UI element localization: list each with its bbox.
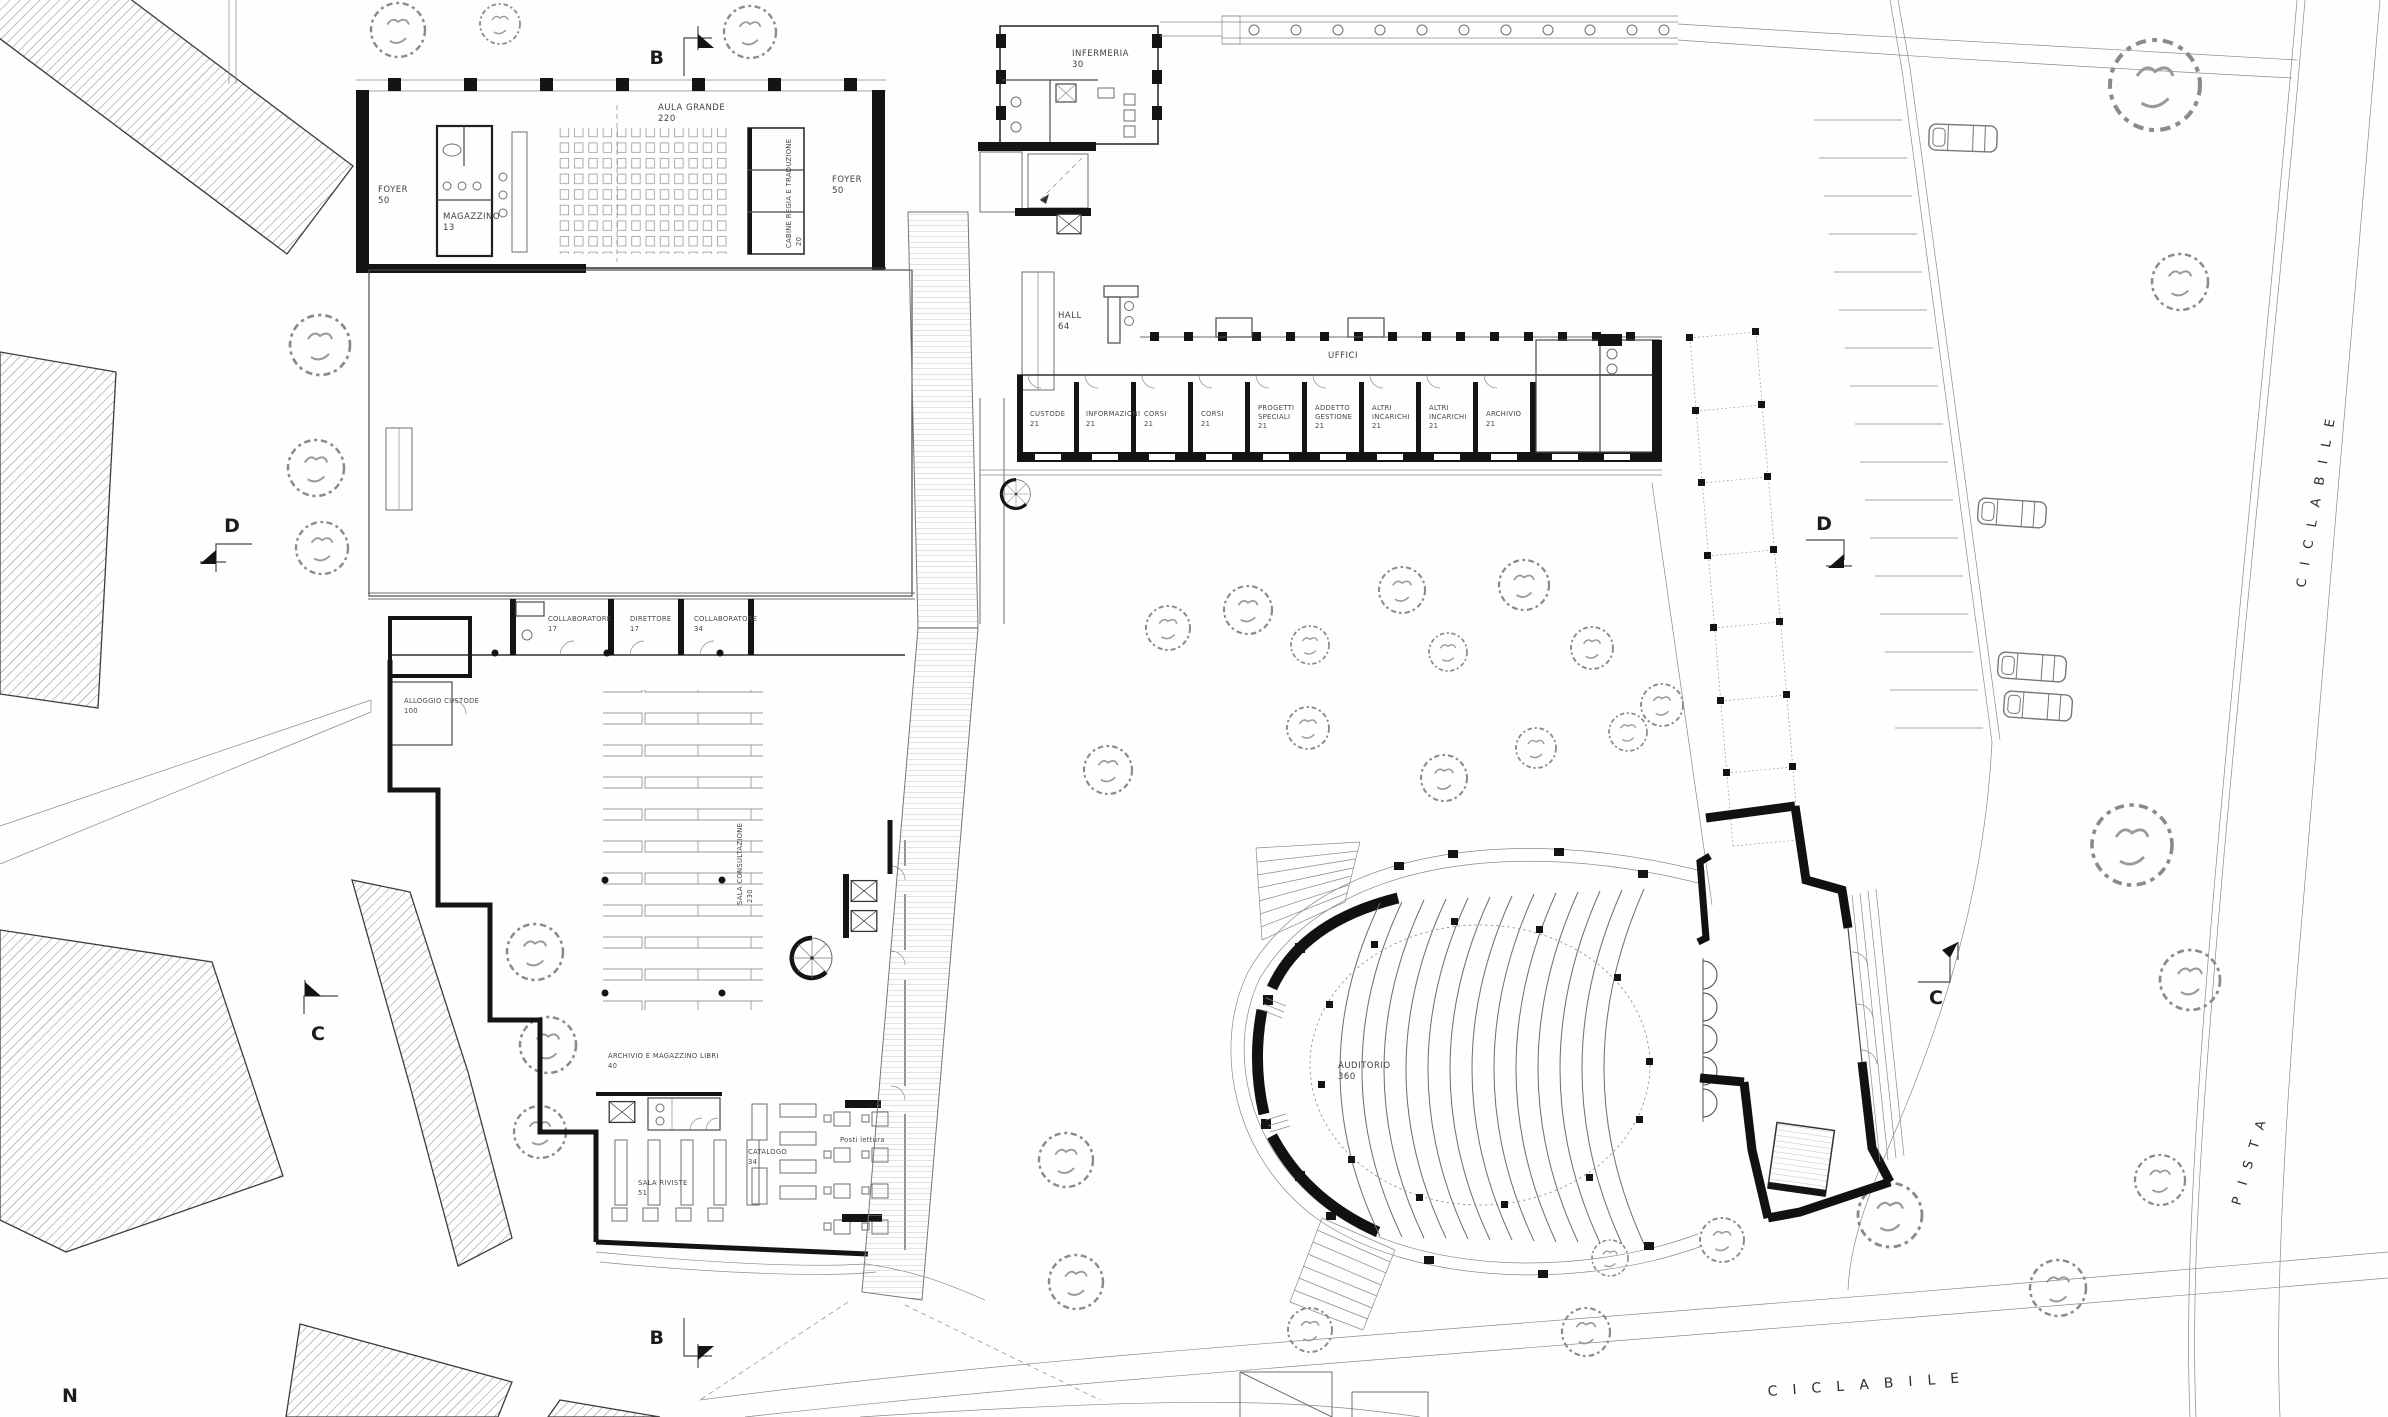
site-plan-page: FOYER50 MAGAZZINO13 AULA GRANDE220 CABIN… [0,0,2388,1417]
tree-icon [1039,1133,1093,1187]
stage-stair-block [1768,1122,1835,1196]
room-label-direttore: DIRETTORE17 [630,615,672,633]
existing-building [0,352,116,708]
room-label-collaboratore-1: COLLABORATORE17 [548,615,611,633]
svg-text:C: C [1929,987,1943,1009]
office-room-label-0: CUSTODE21 [1030,410,1065,428]
car-icon [1929,124,1998,152]
tree-icon [1287,707,1329,749]
tree-icon [1641,684,1683,726]
elevator-icon [851,911,877,932]
room-label-auditorio: AUDITORIO360 [1338,1061,1391,1082]
tree-icon [371,3,425,57]
section-marker-b-top: B [650,26,714,76]
north-indicator: N [62,1385,78,1407]
spiral-stair-icon [792,938,832,978]
section-markers: B B D D C C N [62,26,1958,1407]
tree-icon [1224,586,1272,634]
section-marker-c-left: C [304,980,338,1045]
svg-text:D: D [1816,513,1832,535]
infermeria-building: INFERMERIA30 [978,26,1162,216]
room-label-sala-riviste: SALA RIVISTE51 [638,1179,688,1197]
tree-icon [1609,713,1647,751]
room-label-alloggio-custode: ALLOGGIO CUSTODE100 [404,697,479,715]
sala-building [368,270,915,599]
tree-icon [1146,606,1190,650]
path-label-ciclabile-bottom: CICLABILE [1767,1370,1974,1400]
tree-icon [2092,805,2172,885]
svg-text:B: B [650,1327,664,1349]
tree-icon [1084,746,1132,794]
room-label-aula-grande: AULA GRANDE220 [658,103,725,124]
room-label-collaboratore-2: COLLABORATORE34 [694,615,757,633]
tree-icon [520,1017,576,1073]
car-icon [1977,498,2047,529]
site-plan-drawing: FOYER50 MAGAZZINO13 AULA GRANDE220 CABIN… [0,0,2388,1417]
tree-icon [1421,755,1467,801]
existing-building [0,0,353,254]
room-label-infermeria: INFERMERIA30 [1072,49,1129,70]
room-label-catalogo: CATALOGO34 [748,1148,787,1166]
office-room-label-8: ARCHIVIO21 [1486,410,1521,428]
tree-icon [2030,1260,2086,1316]
office-wing: UFFICI CUSTODE21 INFORMAZIONI21 CORSI21 … [980,318,1662,475]
tree-icon [480,4,520,44]
room-label-cabine-regia: CABINE REGIA E TRADUZIONE [785,139,793,248]
elevator-icon [1057,214,1081,234]
svg-text:C: C [311,1023,325,1045]
room-label-hall: HALL64 [1058,311,1082,332]
tree-icon [288,440,344,496]
promenade-ramp [862,212,1004,1300]
office-room-label-4: PROGETTISPECIALI21 [1258,404,1294,430]
pergola-columns [1249,25,1669,35]
existing-building [286,1324,512,1417]
tree-icon [1571,627,1613,669]
alloggio-custode: ALLOGGIO CUSTODE100 [390,618,479,745]
room-label-foyer-right: FOYER50 [832,175,862,196]
office-room-label-3: CORSI21 [1201,410,1224,428]
tree-icon [1429,633,1467,671]
tree-icon [2160,950,2220,1010]
elevator-icon [851,881,877,902]
tree-icon [507,924,563,980]
tree-icon [1288,1308,1332,1352]
room-label-foyer-left: FOYER50 [378,185,408,206]
stage-house [1698,806,1904,1218]
office-room-label-2: CORSI21 [1144,410,1167,428]
section-marker-b-bottom: B [650,1318,714,1368]
fan-stair [1256,842,1360,940]
tree-icon [1291,626,1329,664]
pergola [1160,16,1799,846]
spiral-stair-icon [1001,480,1030,509]
tree-icon [1379,567,1425,613]
tree-icon [296,522,348,574]
section-marker-d-right: D [1806,513,1852,568]
tree-icon [1049,1255,1103,1309]
tree-icon [1562,1308,1610,1356]
path-label-pista: PISTA [2229,1106,2273,1207]
existing-building [0,930,283,1252]
trellis [1686,328,1799,846]
room-area-sala-consultazione: 230 [746,889,754,903]
path-label-ciclabile-side: CICLABILE [2294,405,2341,588]
admin-rooms: COLLABORATORE17 DIRETTORE17 COLLABORATOR… [390,599,905,657]
car-icon [2003,691,2073,722]
room-label-archivio-libri: ARCHIVIO E MAGAZZINO LIBRI40 [608,1052,719,1070]
aula-grande-building: FOYER50 MAGAZZINO13 AULA GRANDE220 CABIN… [356,78,886,273]
tree-icon [2152,254,2208,310]
svg-text:B: B [650,47,664,69]
existing-building [548,1400,660,1417]
car-icon [1997,652,2067,683]
wing-label-uffici: UFFICI [1328,351,1358,361]
stage-light-chain [1703,958,1717,1122]
tree-icon [1700,1218,1744,1262]
room-area-cabine-regia: 20 [795,237,803,246]
office-room-label-6: ALTRIINCARICHI21 [1372,404,1410,430]
svg-text:D: D [224,515,240,537]
office-room-label-7: ALTRIINCARICHI21 [1429,404,1467,430]
parking [1929,124,2073,722]
office-room-label-5: ADDETTOGESTIONE21 [1315,404,1352,430]
tree-icon [724,6,776,58]
tree-icon [2135,1155,2185,1205]
tree-icon [290,315,350,375]
section-marker-d-left: D [200,515,252,572]
tree-icon [1516,728,1556,768]
tree-icon [1499,560,1549,610]
auditorium: AUDITORIO360 [1231,842,1717,1330]
entrance-hall: HALL64 [1001,214,1138,508]
room-label-sala-consultazione: SALA CONSULTAZIONE [736,823,744,905]
elevator-icon [609,1102,635,1123]
